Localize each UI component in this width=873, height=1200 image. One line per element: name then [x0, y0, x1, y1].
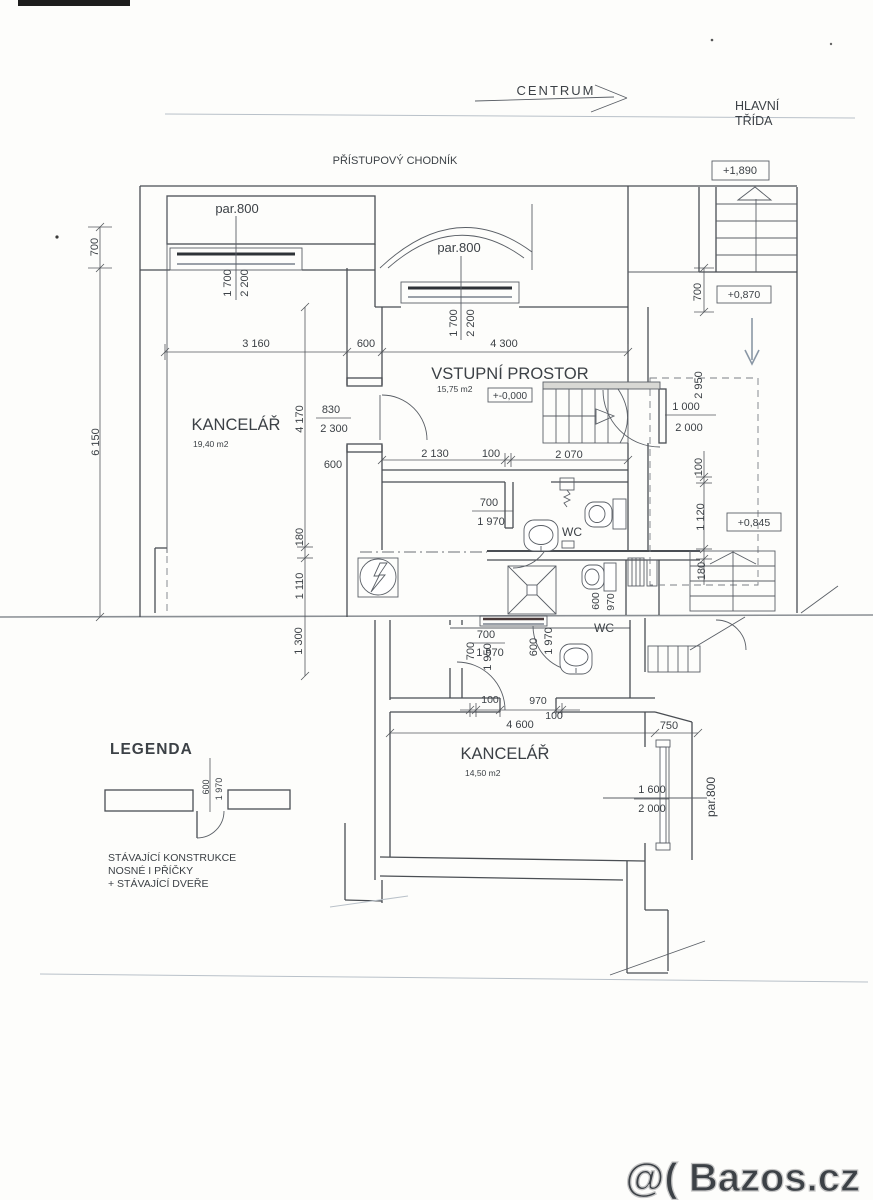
dim-2000: 2 000: [675, 422, 703, 434]
level-badge-1890: +1,890: [712, 161, 769, 180]
label-hlavni-1: HLAVNÍ: [735, 98, 780, 113]
floorplan-scan: CENTRUM HLAVNÍ TŘÍDA PŘÍSTUPOVÝ CHODNÍK …: [0, 0, 873, 1200]
dim-750: 750: [660, 720, 678, 732]
legend-line-2: NOSNÉ I PŘÍČKY: [108, 864, 193, 877]
down-arrow: [745, 318, 759, 364]
dim-180-right: 180: [696, 562, 708, 580]
dim-1110: 1 110: [294, 573, 306, 600]
room-vstupni: VSTUPNÍ PROSTOR: [431, 364, 588, 383]
legend-title: LEGENDA: [110, 741, 193, 758]
dim-1000: 1 000: [672, 401, 700, 413]
internal-staircase: [543, 382, 660, 443]
dim-w2-2200: 2 200: [465, 309, 477, 337]
dim-600-shaft: 600: [590, 592, 602, 610]
dim-2130: 2 130: [421, 448, 449, 460]
label-chodnik: PŘÍSTUPOVÝ CHODNÍK: [333, 154, 458, 167]
dim-100b: 100: [545, 710, 563, 722]
dim-830: 830: [322, 404, 340, 416]
lower-side-stair: [648, 646, 700, 672]
scan-artifacts: [0, 0, 873, 982]
dim-3160: 3 160: [242, 338, 270, 350]
room-kancelar2-area: 14,50 m2: [465, 768, 501, 778]
bazos-watermark: @( Bazos.cz: [625, 1156, 860, 1200]
level-0845-text: +0,845: [738, 517, 771, 529]
dim-w1-2200: 2 200: [239, 269, 251, 297]
label-par800-lower: par.800: [704, 777, 718, 817]
label-par800-left: par.800: [215, 201, 258, 216]
toilet-upper-icon: [585, 499, 626, 529]
dim-4600: 4 600: [506, 719, 534, 731]
dim-1120: 1 120: [695, 503, 707, 531]
dim-1300: 1 300: [293, 627, 305, 655]
dim-lw1970v: 1 970: [543, 627, 555, 655]
legend-line-3: + STÁVAJÍCÍ DVEŘE: [108, 877, 208, 890]
dimension-lines-upper: [88, 223, 716, 680]
dim-wcdoor-1970: 1 970: [477, 516, 505, 528]
electrical-boxes-icon: [628, 558, 657, 586]
legend-dim-600: 600: [201, 779, 211, 794]
dim-100-right: 100: [693, 458, 705, 476]
floorplan-drawing: CENTRUM HLAVNÍ TŘÍDA PŘÍSTUPOVÝ CHODNÍK …: [0, 0, 873, 1200]
dim-wcdoor-700: 700: [480, 497, 498, 509]
legend-dim-1970: 1 970: [214, 778, 224, 801]
legend-symbol: [105, 758, 290, 838]
dim-2950: 2 950: [693, 371, 705, 399]
dim-w1-1700: 1 700: [222, 269, 234, 297]
label-par800-entry: par.800: [437, 240, 480, 255]
legend-text: LEGENDA 600 1 970 STÁVAJÍCÍ KONSTRUKCE N…: [108, 741, 236, 890]
lower-window-band: [480, 616, 547, 626]
dim-lwin1600: 1 600: [638, 784, 666, 796]
dim-970-shaft: 970: [605, 593, 617, 611]
level-badge-0870: +0,870: [717, 286, 771, 303]
dim-6150: 6 150: [90, 428, 102, 456]
lower-plan-walls: [330, 617, 745, 975]
dim-lw600v: 600: [528, 638, 540, 656]
room-vstupni-area: 15,75 m2: [437, 384, 473, 394]
level-badge-0845: +0,845: [727, 513, 781, 531]
dim-lw700v: 700: [465, 642, 477, 660]
dim-700-right: 700: [692, 283, 704, 301]
room-wc1: WC: [562, 525, 582, 539]
door-entry-east: [603, 389, 666, 447]
level-badge-0000: +-0,000: [488, 388, 532, 402]
dim-w2-1700: 1 700: [448, 309, 460, 337]
sink-lower-icon: [560, 644, 592, 674]
window-left: [170, 216, 302, 300]
dimension-lines-lower: [386, 643, 702, 799]
dim-lw700h: 700: [477, 629, 495, 641]
room-kancelar1: KANCELÁŘ: [192, 415, 281, 434]
room-wc2: WC: [594, 621, 614, 635]
room-kancelar1-area: 19,40 m2: [193, 439, 229, 449]
dim-lw1950v: 1 950: [482, 643, 494, 671]
dim-600-top: 600: [357, 338, 375, 350]
exterior-stair-up: [716, 187, 797, 272]
dim-lwin2000: 2 000: [638, 803, 666, 815]
level-1890-text: +1,890: [723, 165, 757, 177]
level-0000-text: +-0,000: [493, 391, 528, 402]
shower-icon: [508, 566, 556, 614]
dim-4300: 4 300: [490, 338, 518, 350]
door-kancelar: [347, 378, 427, 452]
toilet-shaft-icon: [582, 563, 616, 591]
legend-line-1: STÁVAJÍCÍ KONSTRUKCE: [108, 851, 236, 864]
electric-meter-icon: [358, 558, 398, 597]
dim-970: 970: [529, 695, 547, 707]
window-entry: [401, 256, 519, 340]
label-hlavni-2: TŘÍDA: [735, 113, 773, 128]
dim-180-mid: 180: [294, 528, 306, 546]
exterior-stair-low: [690, 551, 838, 613]
dim-100a: 100: [481, 694, 499, 706]
dim-700-left: 700: [89, 238, 101, 256]
dim-600-door: 600: [324, 459, 342, 471]
label-centrum: CENTRUM: [517, 83, 596, 98]
dim-2300: 2 300: [320, 423, 348, 435]
room-kancelar2: KANCELÁŘ: [461, 744, 550, 763]
dim-2070: 2 070: [555, 449, 583, 461]
level-0870-text: +0,870: [728, 289, 761, 301]
dim-4170: 4 170: [294, 405, 306, 433]
upper-plan-dashed: [167, 378, 758, 613]
dim-100-entry: 100: [482, 448, 500, 460]
